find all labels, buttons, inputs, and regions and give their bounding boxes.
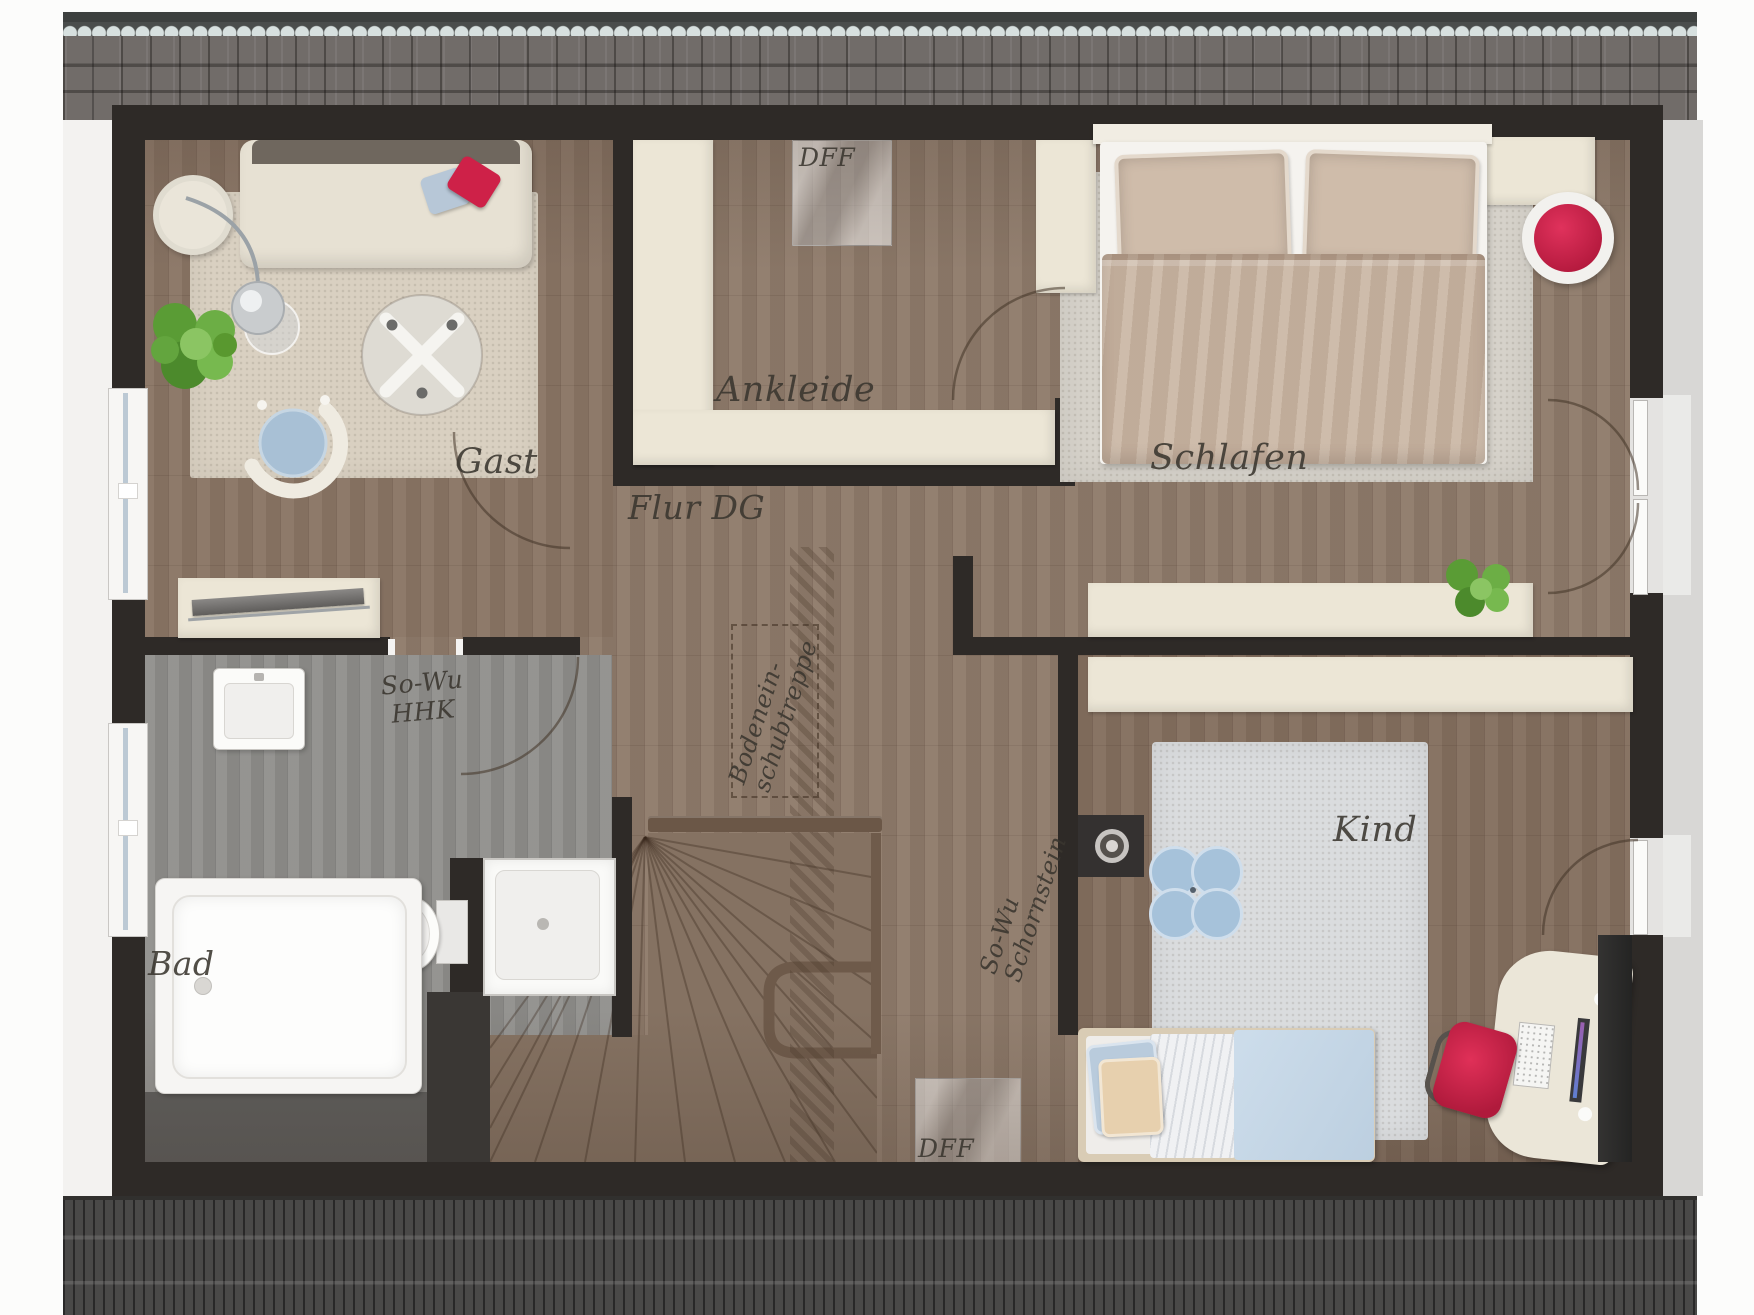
room-label-schlafen: Schlafen <box>1150 438 1308 478</box>
wall-bad-north-west <box>112 637 390 655</box>
roof-ridge <box>63 12 1697 22</box>
room-label-ankleide: Ankleide <box>716 370 875 410</box>
door-post-bad-left <box>388 639 395 655</box>
monitor <box>1569 1018 1590 1103</box>
desk-grommet <box>1577 1106 1592 1121</box>
pouf-flower-kind <box>1146 843 1240 937</box>
bed-kind-duvet-white <box>1150 1034 1236 1158</box>
wall-gast-ankleide <box>613 137 633 483</box>
sideboard-gast <box>178 578 380 638</box>
shower <box>483 858 616 996</box>
room-label-kind: Kind <box>1333 810 1417 850</box>
washbasin-faucet <box>254 673 264 681</box>
shower-drain <box>537 918 549 930</box>
bed-kind-duvet-blue <box>1234 1030 1374 1160</box>
exterior-right <box>1663 120 1703 1196</box>
washbasin-bowl <box>224 683 294 739</box>
wardrobe-ankleide-horizontal <box>633 410 1055 465</box>
wall-ankleide-south <box>613 465 1075 486</box>
wall-right-middle <box>1630 593 1663 838</box>
pouf-center-dot <box>1190 887 1196 893</box>
side-table-gast <box>153 175 233 255</box>
wall-exterior-bottom <box>112 1162 1663 1196</box>
wall-bad-north-east <box>463 637 580 655</box>
room-label-flur: Flur DG <box>628 488 765 527</box>
roof-gutter <box>63 22 1697 36</box>
door-post-bad-right <box>456 639 463 655</box>
exterior-left <box>63 120 112 1196</box>
wardrobe-dark-kind <box>1598 935 1632 1162</box>
stair-rail-top <box>648 816 882 832</box>
nightstand-schlafen <box>1036 140 1096 293</box>
sideboard-kind-wall <box>1088 657 1633 712</box>
sofa-back <box>252 140 520 164</box>
pouf-petal <box>1191 888 1243 940</box>
exterior-sill-kind <box>1663 835 1691 937</box>
exterior-sill-schlafen <box>1663 395 1691 595</box>
wall-left-middle <box>112 596 145 723</box>
wall-left-upper <box>112 105 145 390</box>
bed-kind-pillow-beige <box>1098 1056 1164 1137</box>
wall-right-upper <box>1630 105 1663 398</box>
roof-top <box>63 12 1697 120</box>
wall-schlafen-kind <box>953 637 1633 655</box>
wall-flur-stub <box>953 556 973 655</box>
wall-storage-divider <box>427 992 490 1162</box>
window-gast-mullion <box>118 483 138 499</box>
door-leaf-kind <box>1633 840 1648 935</box>
round-chair-schlafen-seat <box>1534 204 1602 272</box>
room-label-bad: Bad <box>148 944 215 983</box>
sideboard-schlafen <box>1088 583 1533 637</box>
annotation-sowu-line2: HHK <box>390 694 456 728</box>
chimney-block <box>1078 815 1144 877</box>
wall-right-lower <box>1630 935 1663 1162</box>
door-leaf-schlafen-bottom <box>1633 499 1648 595</box>
bed-schlafen-pillow-right <box>1302 149 1480 269</box>
floor-plan: Gast Ankleide Schlafen Flur DG Bad Kind … <box>0 0 1754 1315</box>
bathtub <box>155 878 422 1094</box>
door-leaf-schlafen-top <box>1633 400 1648 496</box>
bed-schlafen-duvet <box>1102 254 1485 464</box>
stair-rail-right <box>871 833 881 1054</box>
toilet-tank <box>436 900 468 964</box>
monitor-screen <box>1573 1022 1585 1098</box>
annotation-dff-top: DFF <box>799 143 855 172</box>
window-bad-mullion <box>118 820 138 836</box>
room-label-gast: Gast <box>455 442 538 482</box>
chimney-flue-inner <box>1106 840 1118 852</box>
roof-bottom <box>63 1196 1697 1315</box>
annotation-dff-bottom: DFF <box>918 1134 974 1163</box>
bed-schlafen-headboard <box>1093 124 1492 144</box>
washbasin <box>213 668 305 750</box>
annotation-sowu-hhk: So-Wu HHK <box>380 665 467 730</box>
wall-left-lower <box>112 935 145 1162</box>
bed-schlafen-pillow-left <box>1114 149 1292 269</box>
